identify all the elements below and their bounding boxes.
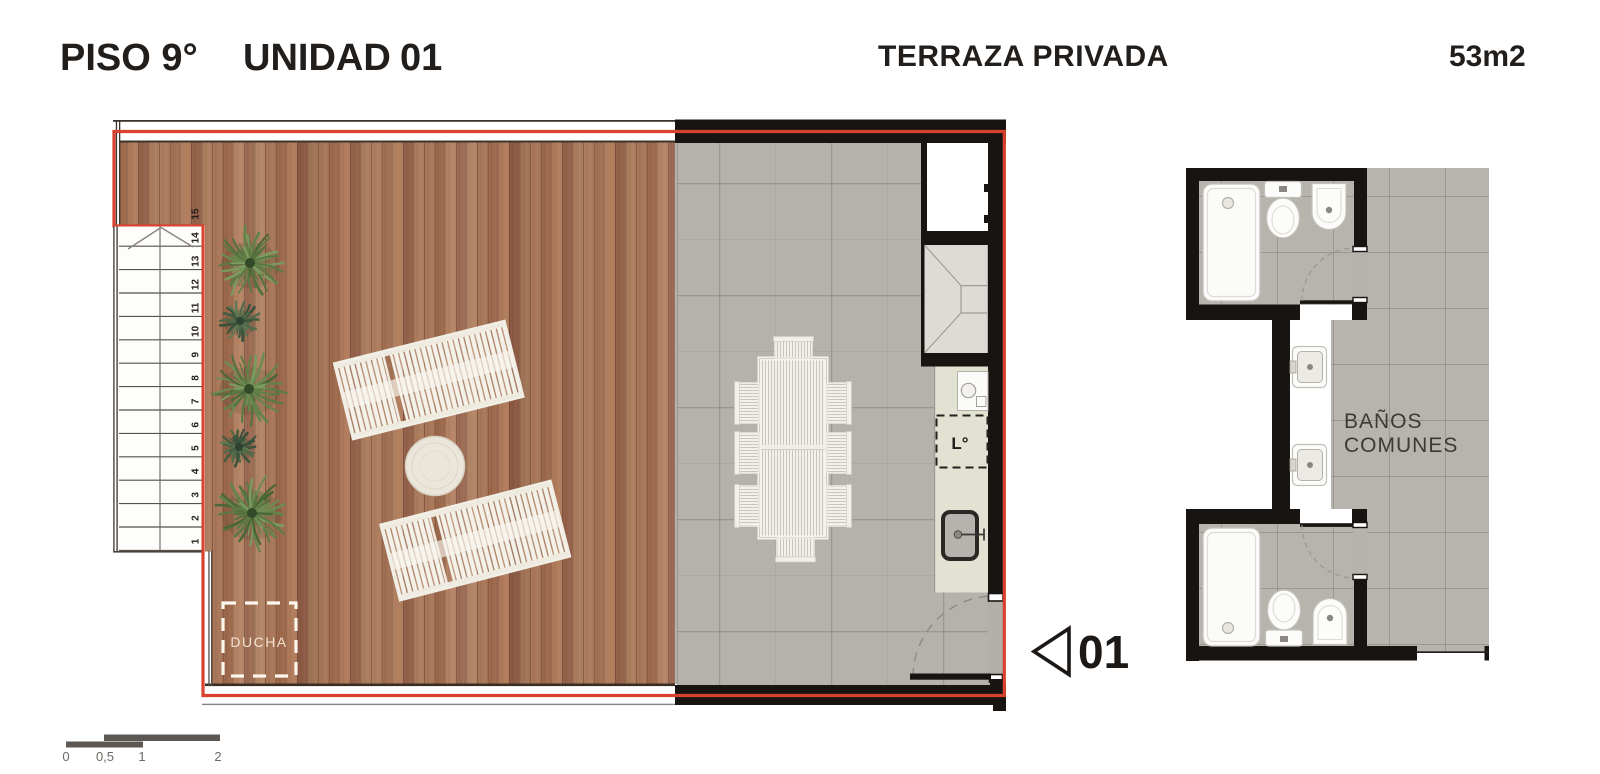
svg-text:2: 2 [214, 749, 221, 764]
svg-text:53m2: 53m2 [1449, 40, 1526, 73]
svg-text:5: 5 [191, 445, 202, 451]
svg-text:DUCHA: DUCHA [230, 634, 287, 650]
svg-text:6: 6 [191, 422, 202, 428]
svg-text:12: 12 [191, 279, 202, 291]
svg-text:3: 3 [191, 492, 202, 498]
svg-text:9: 9 [191, 351, 202, 357]
svg-text:0: 0 [62, 749, 69, 764]
svg-text:1: 1 [138, 749, 145, 764]
svg-text:PISO 9°: PISO 9° [60, 37, 198, 79]
svg-text:11: 11 [191, 302, 202, 313]
svg-text:2: 2 [191, 515, 202, 521]
svg-text:0,5: 0,5 [96, 749, 114, 764]
svg-text:14: 14 [191, 232, 202, 244]
svg-text:1: 1 [191, 538, 202, 544]
svg-text:13: 13 [191, 255, 202, 267]
svg-text:UNIDAD: UNIDAD [243, 37, 391, 79]
svg-text:COMUNES: COMUNES [1344, 434, 1458, 457]
svg-text:BAÑOS: BAÑOS [1344, 409, 1423, 433]
svg-text:7: 7 [191, 398, 202, 404]
svg-text:10: 10 [191, 325, 202, 337]
svg-text:01: 01 [1078, 626, 1129, 678]
svg-text:01: 01 [400, 37, 442, 79]
svg-text:15: 15 [191, 208, 202, 220]
svg-text:TERRAZA PRIVADA: TERRAZA PRIVADA [878, 40, 1169, 73]
svg-text:8: 8 [191, 375, 202, 381]
svg-text:4: 4 [191, 468, 202, 474]
svg-text:L°: L° [951, 434, 968, 453]
